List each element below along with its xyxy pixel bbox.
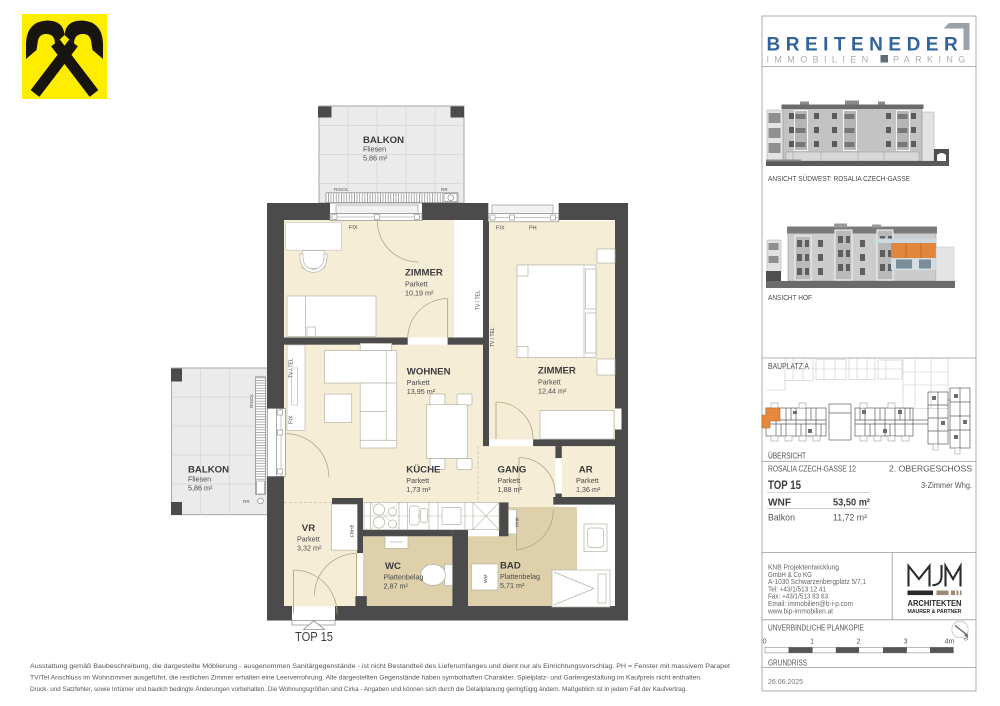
svg-text:UNVERBINDLICHE PLANKOPIE: UNVERBINDLICHE PLANKOPIE (768, 623, 864, 633)
svg-text:0: 0 (763, 637, 767, 646)
svg-text:WOHNEN: WOHNEN (407, 367, 451, 378)
svg-text:Balkon: Balkon (768, 513, 795, 523)
svg-text:RIGOL: RIGOL (249, 393, 254, 408)
svg-text:GmbH & Co KG: GmbH & Co KG (768, 572, 812, 579)
svg-text:Fax: +43/1/513 83 63: Fax: +43/1/513 83 63 (768, 594, 828, 601)
svg-text:Parkett: Parkett (538, 378, 561, 387)
svg-text:ANSICHT SÜDWEST: ROSALIA CZECH: ANSICHT SÜDWEST: ROSALIA CZECH-GASSE (768, 174, 910, 183)
svg-text:IMMOBILIEN: IMMOBILIEN (767, 55, 874, 65)
svg-text:Plattenbelag: Plattenbelag (500, 572, 540, 581)
svg-text:Fliesen: Fliesen (188, 475, 211, 484)
svg-text:ANSICHT HOF: ANSICHT HOF (768, 293, 812, 302)
svg-text:Tel: +43/1/513 12 41: Tel: +43/1/513 12 41 (768, 586, 826, 593)
svg-text:ARCHITEKTEN: ARCHITEKTEN (908, 598, 962, 608)
svg-text:1,73 m²: 1,73 m² (406, 485, 431, 494)
svg-text:12,44 m²: 12,44 m² (538, 387, 567, 396)
svg-text:TV / TEL: TV / TEL (490, 327, 496, 347)
svg-text:5,86 m²: 5,86 m² (363, 154, 388, 163)
svg-text:5,71 m²: 5,71 m² (500, 581, 525, 590)
svg-text:1: 1 (810, 637, 814, 646)
svg-text:WNF: WNF (768, 498, 791, 509)
svg-text:Plattenbelag: Plattenbelag (384, 573, 424, 582)
svg-text:PH: PH (529, 226, 537, 232)
svg-text:Parkett: Parkett (407, 378, 430, 387)
svg-text:MAURER & PARTNER: MAURER & PARTNER (908, 609, 963, 615)
svg-text:Fliesen: Fliesen (363, 145, 386, 154)
svg-text:FIX: FIX (289, 415, 295, 424)
svg-text:Ausstattung gemäß Baubeschreib: Ausstattung gemäß Baubeschreibung, die d… (30, 663, 730, 670)
svg-text:RIGOL: RIGOL (334, 187, 349, 192)
svg-text:4m: 4m (945, 637, 955, 646)
svg-text:RR: RR (441, 187, 448, 192)
svg-text:WM: WM (483, 574, 489, 583)
svg-text:TOP 15: TOP 15 (768, 478, 801, 492)
svg-text:26.06.2025: 26.06.2025 (768, 679, 803, 686)
svg-text:FBHE: FBHE (350, 524, 356, 537)
svg-text:13,95 m²: 13,95 m² (407, 387, 436, 396)
svg-text:Parkett: Parkett (297, 535, 320, 544)
svg-text:BAUPLATZ A: BAUPLATZ A (768, 362, 810, 371)
svg-text:5,86 m²: 5,86 m² (188, 484, 213, 493)
svg-text:1,88 m²: 1,88 m² (498, 485, 523, 494)
svg-text:1,36 m²: 1,36 m² (576, 485, 601, 494)
svg-text:ROSALIA CZECH-GASSE 12: ROSALIA CZECH-GASSE 12 (768, 465, 856, 474)
svg-text:2. OBERGESCHOSS: 2. OBERGESCHOSS (889, 465, 973, 474)
svg-text:www.bip-immobilien.at: www.bip-immobilien.at (767, 608, 833, 615)
svg-text:FIX: FIX (349, 225, 358, 231)
svg-text:KNB Projektentwicklung: KNB Projektentwicklung (768, 565, 839, 572)
svg-text:VR: VR (302, 523, 315, 534)
svg-text:3,32 m²: 3,32 m² (297, 544, 322, 553)
svg-text:Parkett: Parkett (498, 476, 521, 485)
svg-text:ZIMMER: ZIMMER (538, 366, 576, 377)
svg-text:Parkett: Parkett (576, 476, 599, 485)
svg-text:ZIMMER: ZIMMER (405, 268, 443, 279)
svg-text:BAD: BAD (500, 561, 521, 572)
svg-text:53,50 m²: 53,50 m² (833, 498, 871, 509)
svg-text:HHK: HHK (515, 516, 521, 527)
svg-text:Parkett: Parkett (405, 280, 428, 289)
svg-text:TV/Tel Anschluss im Wohnzimmer: TV/Tel Anschluss im Wohnzimmer ausgeführ… (30, 675, 702, 682)
svg-text:Email: immobilien@b-i-p.com: Email: immobilien@b-i-p.com (768, 601, 853, 608)
svg-text:N: N (963, 636, 970, 643)
svg-text:Druck- und Satzfehler, sowie I: Druck- und Satzfehler, sowie Irrtümer un… (30, 686, 687, 693)
svg-text:AR: AR (579, 465, 593, 476)
svg-text:3: 3 (904, 637, 908, 646)
svg-text:3-Zimmer Whg.: 3-Zimmer Whg. (921, 480, 972, 490)
svg-text:10,19 m²: 10,19 m² (405, 289, 434, 298)
svg-text:2,87 m²: 2,87 m² (384, 582, 409, 591)
svg-text:Parkett: Parkett (406, 476, 429, 485)
svg-text:PARKING: PARKING (893, 55, 971, 65)
svg-text:FIX: FIX (496, 226, 505, 232)
svg-text:TV / TEL: TV / TEL (476, 290, 482, 310)
svg-text:2: 2 (857, 637, 861, 646)
svg-text:A-1030 Schwarzenbergplatz 5/7,: A-1030 Schwarzenbergplatz 5/7,1 (768, 579, 866, 586)
svg-text:TOP 15: TOP 15 (295, 629, 333, 644)
svg-text:WC: WC (385, 561, 401, 572)
svg-text:TV / TEL: TV / TEL (289, 358, 295, 378)
svg-text:GANG: GANG (498, 465, 527, 476)
svg-text:BREITENEDER: BREITENEDER (767, 35, 964, 56)
svg-text:ÜBERSICHT: ÜBERSICHT (768, 452, 806, 461)
svg-text:KÜCHE: KÜCHE (406, 465, 441, 476)
svg-text:11,72 m²: 11,72 m² (833, 513, 867, 523)
svg-text:RR: RR (243, 499, 250, 504)
svg-text:GRUNDRISS: GRUNDRISS (768, 658, 807, 668)
